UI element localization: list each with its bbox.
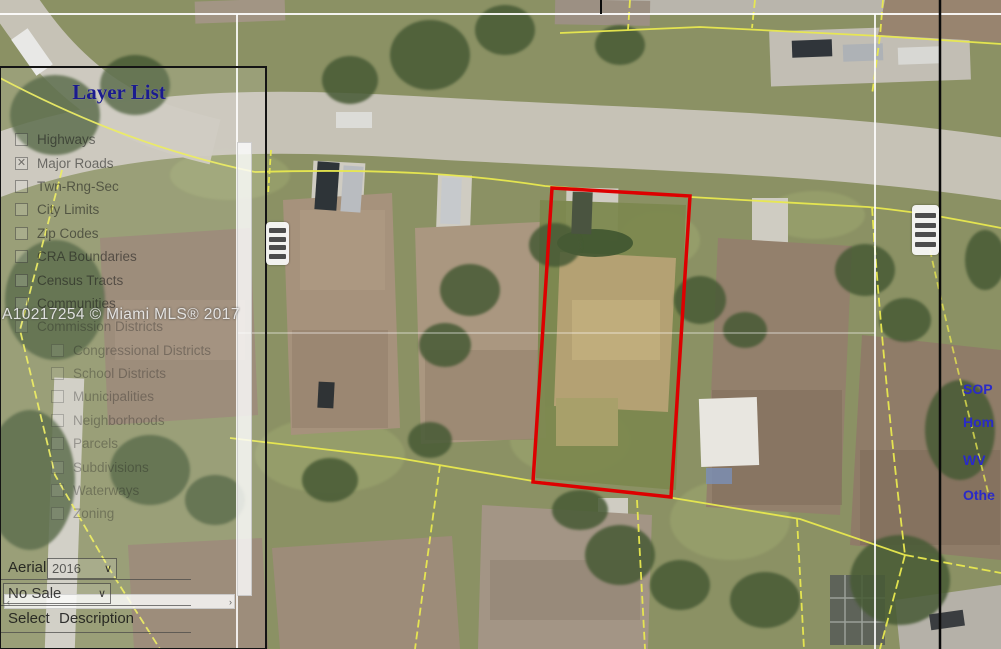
layer-item-school-districts: School Districts [51,362,225,385]
checkbox-icon[interactable] [51,367,64,380]
layer-item-label: CRA Boundaries [37,249,137,264]
checkbox-icon[interactable] [15,274,28,287]
list-icon [915,223,936,228]
checkbox-icon[interactable] [15,180,28,193]
checkbox-icon[interactable] [15,133,28,146]
layer-list-title: Layer List [1,80,237,105]
checkbox-icon[interactable] [51,414,64,427]
list-icon [269,254,286,259]
layer-item-label: Congressional Districts [73,343,211,358]
layer-item-census-tracts: Census Tracts [15,268,225,291]
layer-item-label: School Districts [73,366,166,381]
layer-item-label: Neighborhoods [73,413,165,428]
list-icon [269,237,286,242]
layer-item-label: Subdivisions [73,460,149,475]
divider [1,605,191,606]
layer-item-label: Municipalities [73,389,154,404]
scroll-right-icon[interactable]: › [229,597,232,607]
list-icon [915,242,936,247]
right-link-fragment[interactable]: SOP [963,381,993,397]
checkbox-icon[interactable] [51,390,64,403]
chevron-down-icon: ∨ [104,562,112,575]
layer-item-label: Zoning [73,506,114,521]
layer-list-panel: Layer List Highways✕Major RoadsTwn-Rng-S… [0,66,267,649]
layer-item-congressional-districts: Congressional Districts [51,339,225,362]
checkbox-checked-icon[interactable]: ✕ [15,157,28,170]
mls-watermark: A10217254 © Miami MLS® 2017 [2,306,240,324]
checkbox-icon[interactable] [51,507,64,520]
list-icon-button-left[interactable] [266,222,289,265]
aerial-year-dropdown[interactable]: 2016 ∨ [47,558,117,579]
list-icon-button-right[interactable] [912,205,939,255]
layer-item-neighborhoods: Neighborhoods [51,409,225,432]
checkbox-icon[interactable] [15,250,28,263]
list-icon [269,228,286,233]
right-link-fragment[interactable]: Hom [963,414,994,430]
layer-item-waterways: Waterways [51,479,225,502]
layer-item-label: Zip Codes [37,226,99,241]
layer-item-twn-rng-sec: Twn-Rng-Sec [15,175,225,198]
layer-item-municipalities: Municipalities [51,385,225,408]
list-icon [915,232,936,237]
divider [1,579,191,580]
description-button[interactable]: Description [59,610,134,627]
layer-item-parcels: Parcels [51,432,225,455]
list-icon [915,213,936,218]
layer-item-city-limits: City Limits [15,198,225,221]
aerial-year-value: 2016 [52,561,81,576]
layer-item-zip-codes: Zip Codes [15,222,225,245]
layer-item-label: Twn-Rng-Sec [37,179,119,194]
layer-item-label: Major Roads [37,156,114,171]
layer-item-label: City Limits [37,202,99,217]
sale-filter-value: No Sale [8,585,61,602]
right-link-fragment[interactable]: Othe [963,487,995,503]
checkbox-icon[interactable] [15,227,28,240]
gis-map-screenshot: Layer List Highways✕Major RoadsTwn-Rng-S… [0,0,1001,649]
vertical-scrollbar[interactable] [237,142,252,596]
checkbox-icon[interactable] [51,484,64,497]
layer-item-zoning: Zoning [51,502,225,525]
layer-item-label: Highways [37,132,96,147]
layer-item-cra-boundaries: CRA Boundaries [15,245,225,268]
checkbox-icon[interactable] [51,437,64,450]
select-button[interactable]: Select [8,610,50,627]
layer-item-major-roads: ✕Major Roads [15,151,225,174]
checkbox-icon[interactable] [51,344,64,357]
aerial-label: Aerial [8,559,46,576]
layer-item-label: Waterways [73,483,139,498]
layer-list: Highways✕Major RoadsTwn-Rng-SecCity Limi… [15,128,225,526]
chevron-down-icon: ∨ [98,587,106,600]
list-icon [269,245,286,250]
layer-item-subdivisions: Subdivisions [51,455,225,478]
layer-item-label: Census Tracts [37,273,123,288]
right-link-fragment[interactable]: WV [963,452,986,468]
layer-item-label: Parcels [73,436,118,451]
divider [1,632,191,633]
checkbox-icon[interactable] [51,461,64,474]
layer-item-highways: Highways [15,128,225,151]
checkbox-icon[interactable] [15,203,28,216]
sale-filter-dropdown[interactable]: No Sale ∨ [3,583,111,604]
